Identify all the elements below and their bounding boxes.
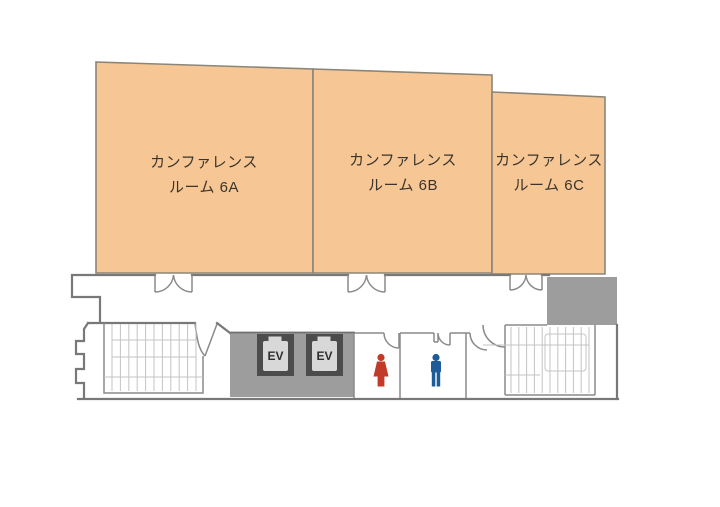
room-6a-label-line1: カンファレンス [119, 150, 289, 175]
floor-plan-drawing [0, 0, 720, 507]
room-6c-label-line1: カンファレンス [464, 148, 634, 173]
room-6c-label-line2: ルーム 6C [464, 173, 634, 198]
floor-plan-page: カンファレンス ルーム 6A カンファレンス ルーム 6B カンファレンス ルー… [0, 0, 720, 507]
restroom-walls [354, 333, 470, 398]
room-6c-label: カンファレンス ルーム 6C [464, 148, 634, 198]
stairs-right-treads [483, 327, 589, 393]
restrooms [354, 333, 470, 398]
stairs-left [104, 323, 217, 393]
room-6b-label: カンファレンス ルーム 6B [318, 148, 488, 198]
room-6b-label-line1: カンファレンス [318, 148, 488, 173]
stairs-right [470, 325, 595, 395]
elevator-2-label: EV [312, 350, 337, 363]
room-6a-label: カンファレンス ルーム 6A [119, 150, 289, 200]
stairs-left-treads [104, 324, 203, 391]
room-6b-label-line2: ルーム 6B [318, 173, 488, 198]
male-icon [431, 354, 441, 387]
elevator-1-label: EV [263, 350, 288, 363]
stairs-right-door-swings [470, 325, 505, 350]
room-6a-label-line2: ルーム 6A [119, 175, 289, 200]
female-icon [374, 354, 389, 387]
room-door-swings [155, 275, 542, 292]
service-block [547, 277, 617, 325]
stairs-left-door-swing [195, 323, 217, 356]
